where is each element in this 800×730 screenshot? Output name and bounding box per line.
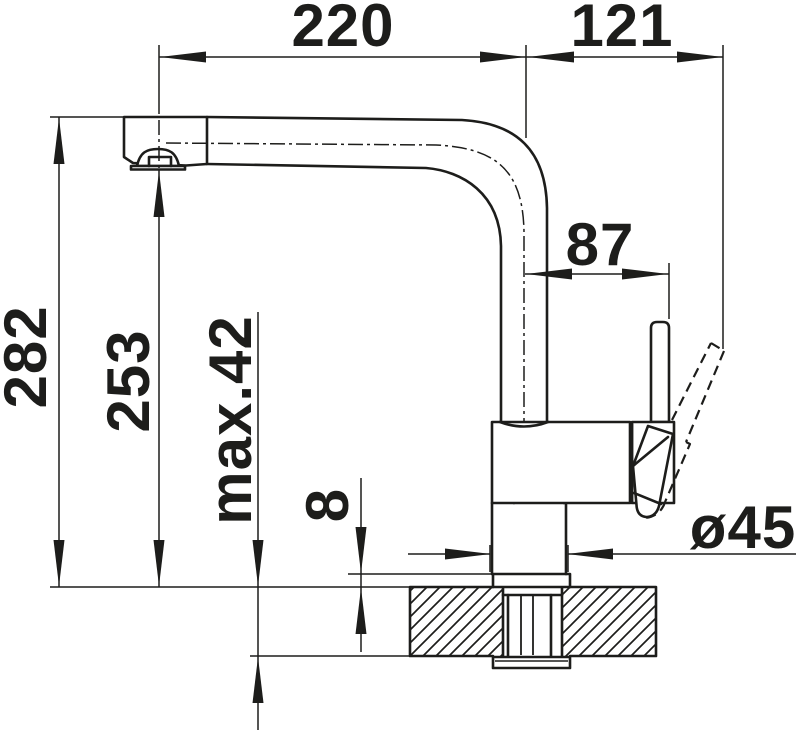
dim-label-8: 8 bbox=[294, 488, 361, 522]
deck-plate bbox=[493, 574, 570, 587]
dim-label-253: 253 bbox=[95, 329, 162, 432]
mixer-body bbox=[492, 422, 630, 503]
counter-hatch-left bbox=[411, 588, 503, 656]
dim-label-220: 220 bbox=[291, 0, 394, 59]
drawing-canvas: 220 121 87 282 253 bbox=[0, 0, 800, 730]
mounting-washer bbox=[493, 657, 570, 668]
dim-label-max42: max.42 bbox=[197, 315, 264, 525]
counter-hatch-right bbox=[562, 588, 655, 656]
dim-label-diameter-45: ø45 bbox=[690, 494, 796, 561]
dim-label-282: 282 bbox=[0, 305, 59, 408]
aerator-face bbox=[131, 166, 185, 170]
faucet-dimension-drawing: 220 121 87 282 253 bbox=[0, 0, 800, 730]
dim-label-121: 121 bbox=[570, 0, 673, 59]
lever-rod bbox=[651, 322, 669, 422]
dim-label-87: 87 bbox=[566, 211, 635, 278]
